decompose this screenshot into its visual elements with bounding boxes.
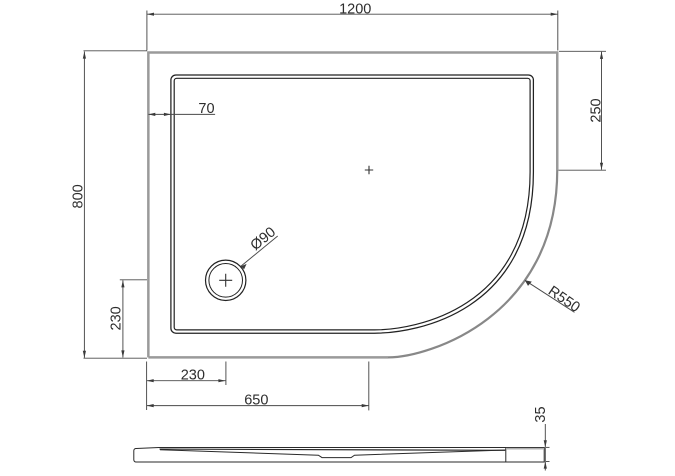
svg-text:1200: 1200 [339,1,371,17]
svg-text:70: 70 [198,101,214,117]
svg-text:230: 230 [109,306,125,330]
svg-text:250: 250 [589,98,605,122]
svg-text:650: 650 [244,393,268,409]
svg-text:800: 800 [70,184,86,208]
svg-text:230: 230 [181,368,205,384]
svg-text:35: 35 [533,406,549,422]
